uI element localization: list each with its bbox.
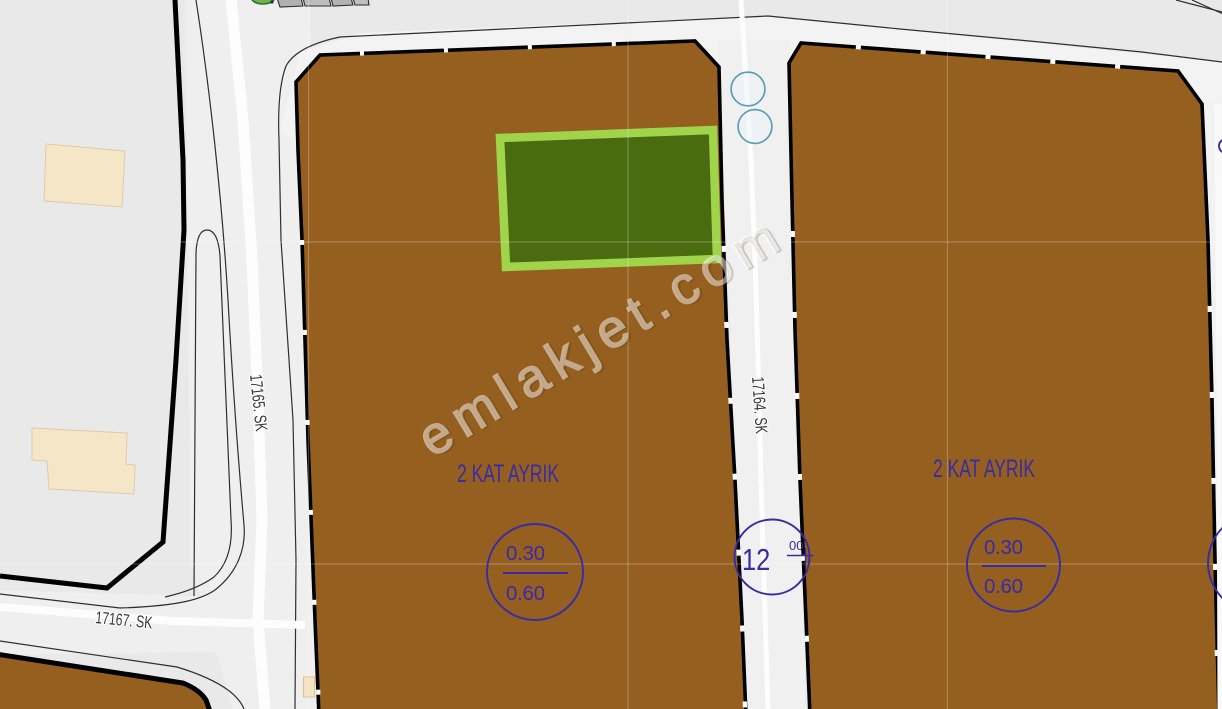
- svg-text:0.30: 0.30: [506, 542, 545, 565]
- svg-text:00: 00: [789, 538, 803, 553]
- svg-text:12: 12: [742, 543, 770, 578]
- svg-text:0.60: 0.60: [984, 575, 1023, 598]
- svg-text:2 KAT AYRIK: 2 KAT AYRIK: [933, 454, 1036, 483]
- svg-text:0.30: 0.30: [984, 536, 1023, 559]
- svg-text:0.60: 0.60: [506, 582, 545, 605]
- svg-text:2 KAT AYRIK: 2 KAT AYRIK: [457, 459, 560, 488]
